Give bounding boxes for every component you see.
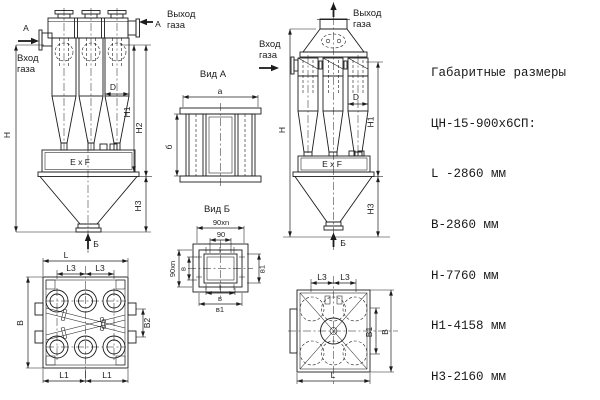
view-b-arrow-label: Б [93,239,99,249]
side-box-label-exf: E x F [322,159,342,169]
dim-label-v-left: в [179,267,188,271]
front-view-arrow-a-right: A [155,19,161,29]
plan-right-dim-b1: B1 [364,327,374,338]
plan-right-dim-l: L [331,370,336,380]
side-gas-inlet-line1: Вход [259,39,281,50]
plan-left-dim-b2: B2 [142,318,152,329]
spec-line: H-7760 мм [431,268,566,285]
plan-left-dim-b: B [15,320,25,326]
box-label-exf: E x F [70,157,90,167]
dim-label-h: H [2,132,12,138]
plan-view-right: L3 L3 B1 B L [288,272,398,384]
dim-label-h2: H2 [134,122,144,133]
plan-left-dim-l1-1: L1 [59,370,69,380]
plan-right-dim-l3-2: L3 [340,272,350,282]
plan-left-dim-l: L [64,250,69,260]
side-view-b-arrow-label: Б [340,238,346,248]
front-gas-outlet-line1: Выход [167,9,196,20]
view-b-detail: Вид Б 90хn 90 90хn в в1 в в1 [168,204,267,314]
spec-line: B-2860 мм [431,217,566,234]
side-gas-outlet-line2: газа [353,19,372,30]
spec-model: ЦН-15-900х6СП: [431,116,566,133]
spec-line: H3-2160 мм [431,369,566,386]
plan-view-left: L L3 L3 B B2 L1 L1 [15,250,152,383]
front-gas-outlet-line2: газа [167,20,186,31]
dim-label-d: D [110,82,116,92]
view-a-detail: Вид А a б [164,69,261,187]
dim-label-b-small: б [164,144,174,149]
dim-label-h1: H1 [122,106,132,117]
front-gas-inlet-line1: Вход [17,53,39,64]
side-dim-label-h1: H1 [366,116,376,127]
dimensions-spec-block: Габаритные размеры ЦН-15-900х6СП: L -286… [431,31,566,400]
side-view: Выход газа Вход газа H D E x F H1 H3 Б [259,2,390,252]
dim-label-h3: H3 [133,200,143,211]
view-a-title: Вид А [200,69,227,80]
dim-label-90xn-left: 90хn [168,261,177,277]
spec-title: Габаритные размеры [431,65,566,82]
dim-label-v1-right: в1 [258,265,267,273]
front-gas-inlet-line2: газа [17,64,36,75]
front-view-arrow-a-left: A [23,23,29,33]
side-dim-label-h3: H3 [366,203,376,214]
drawing-canvas: A Вход газа A Выход газа H D H1 H2 E x F… [0,0,600,400]
dim-label-90: 90 [217,230,225,239]
side-gas-outlet-line1: Выход [353,8,382,19]
plan-right-dim-l3-1: L3 [317,272,327,282]
dim-label-v1-bottom: в1 [216,305,224,314]
spec-line: L -2860 мм [431,166,566,183]
dim-label-v-bottom: в [218,294,222,303]
dim-label-a: a [218,86,223,96]
side-gas-inlet-line2: газа [259,50,278,61]
dim-label-90xn-top: 90хn [213,218,229,227]
plan-right-dim-b: B [380,329,390,335]
side-dim-label-h: H [277,127,287,133]
plan-left-dim-l3-2: L3 [95,263,105,273]
spec-line: H1-4158 мм [431,318,566,335]
side-dim-label-d: D [353,92,359,102]
front-view: A Вход газа A Выход газа H D H1 H2 E x F… [2,8,196,254]
view-b-title: Вид Б [204,204,230,215]
plan-left-dim-l3-1: L3 [66,263,76,273]
plan-left-dim-l1-2: L1 [102,370,112,380]
